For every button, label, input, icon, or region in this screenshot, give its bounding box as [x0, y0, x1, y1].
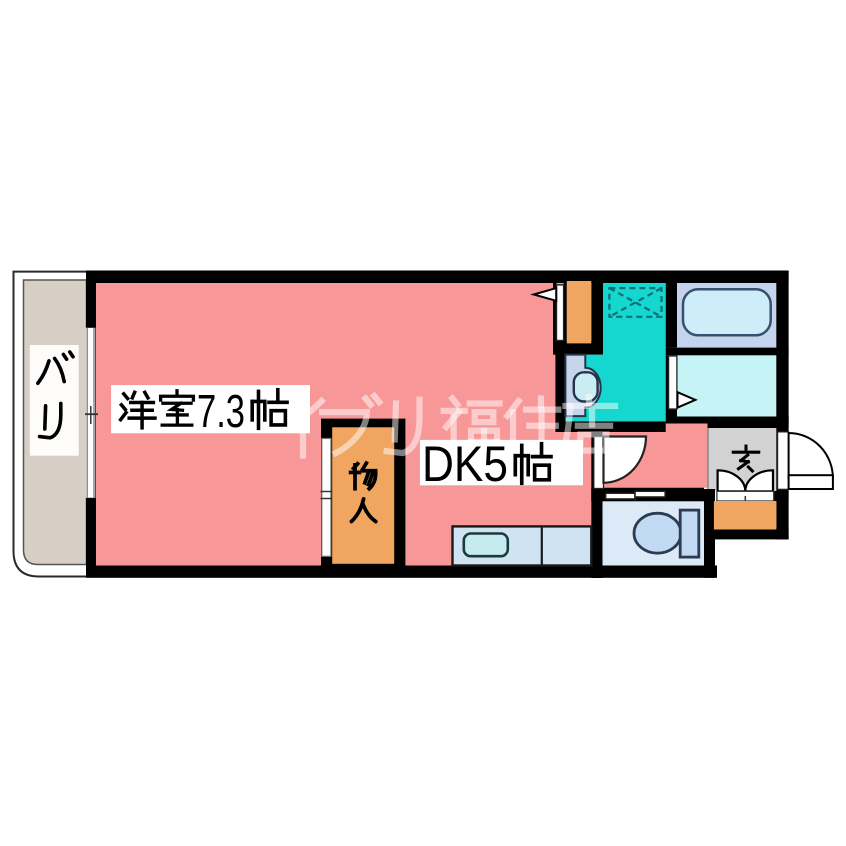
svg-text:DK5: DK5: [422, 436, 508, 492]
svg-text:7.3: 7.3: [197, 385, 245, 437]
